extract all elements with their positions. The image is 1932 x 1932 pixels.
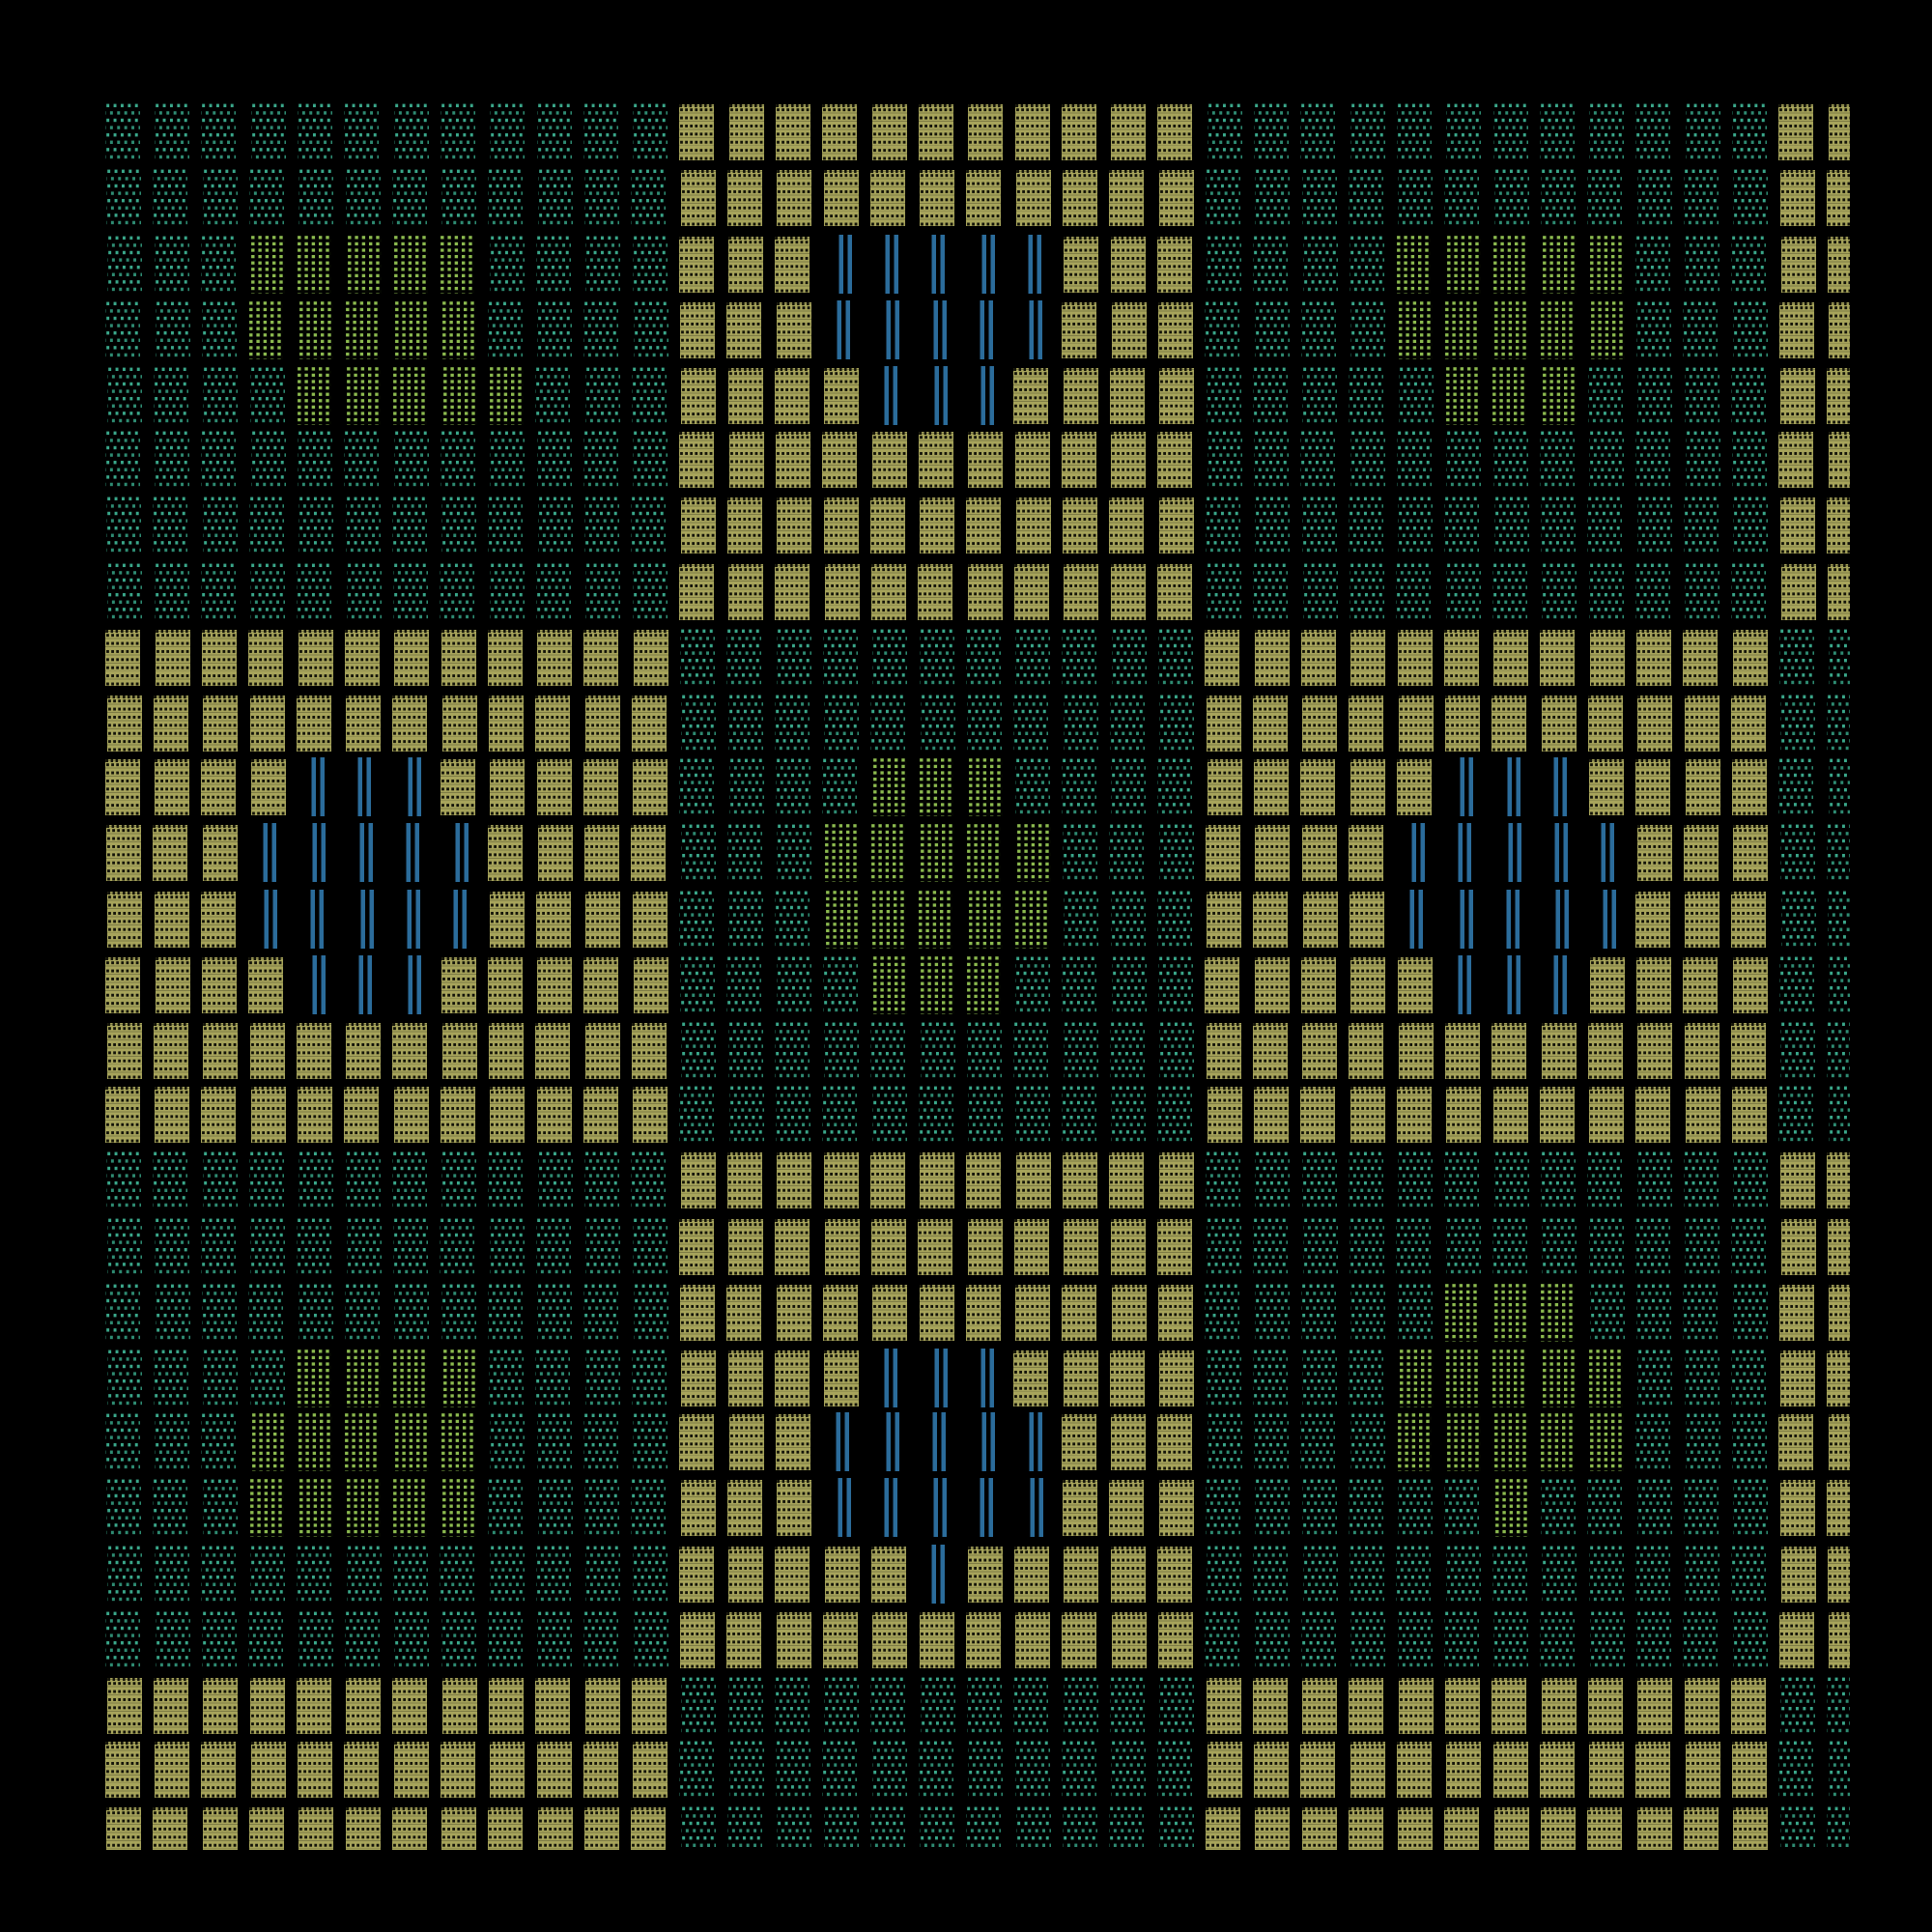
tile-teal-dots	[1207, 1545, 1241, 1604]
tile-khaki-weave	[825, 1547, 860, 1603]
tile-green-dots	[248, 300, 283, 359]
tile-teal-dots	[1350, 235, 1384, 294]
tile-teal-dots	[1062, 1085, 1096, 1144]
tile-green-dots	[1590, 300, 1625, 359]
tile-khaki-weave	[1540, 1742, 1575, 1798]
tile-teal-dots	[824, 1021, 859, 1080]
tile-teal-dots	[583, 1412, 618, 1471]
tile-teal-dots	[823, 955, 858, 1014]
tile-khaki-weave	[203, 1807, 238, 1850]
tile-khaki-weave	[153, 825, 187, 881]
tile-khaki-weave	[1062, 1285, 1096, 1341]
tile-khaki-weave	[1635, 759, 1670, 815]
tile-teal-dots	[1446, 1217, 1481, 1276]
tile-teal-dots	[1253, 366, 1288, 425]
tile-blue-bars	[920, 1478, 954, 1537]
tile-khaki-weave	[919, 432, 953, 488]
tile-teal-dots	[1206, 496, 1240, 554]
tile-teal-dots	[1206, 1478, 1240, 1537]
tile-teal-dots	[1398, 1283, 1433, 1342]
tile-green-dots	[489, 366, 524, 425]
tile-teal-dots	[1062, 757, 1096, 816]
tile-khaki-weave	[823, 1612, 858, 1668]
tile-teal-dots	[1827, 1676, 1850, 1735]
tile-khaki-weave	[489, 696, 524, 752]
tile-khaki-weave	[681, 1152, 716, 1208]
tile-khaki-weave	[1062, 1414, 1096, 1470]
tile-teal-dots	[777, 628, 811, 687]
tile-teal-dots	[1828, 890, 1850, 949]
tile-green-dots	[968, 757, 1003, 816]
tile-blue-bars	[1446, 757, 1481, 816]
tile-green-dots	[440, 1412, 475, 1471]
tile-teal-dots	[537, 1610, 572, 1669]
tile-teal-dots	[726, 628, 761, 687]
tile-teal-dots	[156, 1610, 190, 1669]
tile-khaki-weave	[1829, 1414, 1850, 1470]
tile-khaki-weave	[681, 1350, 716, 1406]
tile-teal-dots	[1587, 168, 1622, 227]
tile-blue-bars	[1493, 955, 1528, 1014]
tile-teal-dots	[727, 823, 762, 882]
tile-blue-bars	[921, 366, 955, 425]
tile-teal-dots	[728, 890, 763, 949]
tile-teal-dots	[490, 1217, 525, 1276]
tile-teal-dots	[1635, 562, 1670, 621]
tile-teal-dots	[1159, 1021, 1194, 1080]
tile-teal-dots	[536, 1217, 571, 1276]
tile-khaki-weave	[1733, 630, 1768, 686]
tile-blue-bars	[871, 235, 906, 294]
tile-khaki-weave	[728, 564, 763, 620]
tile-teal-dots	[1444, 1610, 1479, 1669]
tile-khaki-weave	[1637, 1023, 1672, 1079]
tile-teal-dots	[1780, 694, 1815, 753]
tile-teal-dots	[1207, 1217, 1241, 1276]
tile-teal-dots	[1255, 300, 1290, 359]
tile-blue-bars	[394, 955, 429, 1014]
tile-khaki-weave	[1827, 1480, 1850, 1536]
tile-khaki-weave	[155, 1087, 189, 1143]
tile-khaki-weave	[1207, 1023, 1241, 1079]
tile-khaki-weave	[1397, 1742, 1432, 1798]
tile-khaki-weave	[1494, 1807, 1529, 1850]
tile-khaki-weave	[107, 1678, 142, 1734]
tile-teal-dots	[1301, 1283, 1336, 1342]
tile-khaki-weave	[679, 432, 714, 488]
tile-teal-dots	[535, 366, 570, 425]
tile-khaki-weave	[489, 1678, 524, 1734]
tile-khaki-weave	[1016, 170, 1051, 226]
tile-khaki-weave	[155, 1742, 189, 1798]
tile-khaki-weave	[105, 630, 140, 686]
tile-khaki-weave	[1015, 1612, 1050, 1668]
tile-teal-dots	[1542, 1545, 1577, 1604]
tile-khaki-weave	[824, 1350, 859, 1406]
tile-teal-dots	[1205, 300, 1239, 359]
tile-green-dots	[1493, 300, 1528, 359]
tile-teal-dots	[1302, 366, 1337, 425]
tile-teal-dots	[824, 1805, 859, 1850]
tile-khaki-weave	[1588, 1678, 1623, 1734]
tile-teal-dots	[107, 366, 142, 425]
tile-khaki-weave	[1111, 1547, 1146, 1603]
tile-blue-bars	[298, 955, 333, 1014]
tile-teal-dots	[1015, 1740, 1050, 1799]
tile-khaki-weave	[535, 696, 570, 752]
tile-teal-dots	[1397, 430, 1432, 489]
tile-khaki-weave	[1159, 497, 1194, 554]
tile-blue-bars	[441, 823, 476, 882]
tile-khaki-weave	[1109, 1480, 1144, 1536]
tile-teal-dots	[203, 496, 238, 554]
tile-khaki-weave	[1828, 1219, 1850, 1275]
tile-teal-dots	[250, 1545, 285, 1604]
tile-khaki-weave	[966, 497, 1001, 554]
tile-green-dots	[1492, 366, 1526, 425]
tile-khaki-weave	[442, 1023, 477, 1079]
tile-teal-dots	[344, 102, 379, 161]
tile-khaki-weave	[1349, 696, 1383, 752]
tile-khaki-weave	[538, 825, 573, 881]
tile-teal-dots	[1829, 757, 1850, 816]
tile-khaki-weave	[1492, 696, 1526, 752]
tile-green-dots	[1446, 235, 1481, 294]
tile-khaki-weave	[202, 630, 237, 686]
tile-teal-dots	[1541, 1151, 1576, 1209]
tile-blue-bars	[345, 955, 380, 1014]
tile-khaki-weave	[1206, 825, 1240, 881]
tile-teal-dots	[250, 1217, 285, 1276]
tile-khaki-weave	[297, 696, 331, 752]
tile-khaki-weave	[1588, 1023, 1623, 1079]
tile-khaki-weave	[1829, 432, 1850, 488]
tile-khaki-weave	[250, 1678, 285, 1734]
tile-green-dots	[1589, 1412, 1624, 1471]
tile-teal-dots	[1303, 235, 1338, 294]
tile-khaki-weave	[966, 1152, 1001, 1208]
tile-khaki-weave	[918, 1219, 952, 1275]
tile-teal-dots	[1731, 1217, 1766, 1276]
tile-teal-dots	[203, 1478, 238, 1537]
tile-khaki-weave	[822, 104, 857, 160]
tile-teal-dots	[203, 1151, 238, 1209]
tile-teal-dots	[1637, 1478, 1672, 1537]
tile-khaki-weave	[1255, 957, 1290, 1013]
tile-teal-dots	[1685, 1545, 1719, 1604]
tile-khaki-weave	[1254, 759, 1289, 815]
tile-khaki-weave	[919, 104, 953, 160]
tile-teal-dots	[537, 1412, 572, 1471]
tile-blue-bars	[822, 1412, 857, 1471]
tile-teal-dots	[1731, 366, 1766, 425]
tile-teal-dots	[1589, 562, 1624, 621]
tile-khaki-weave	[1302, 1807, 1337, 1850]
tile-khaki-weave	[777, 1480, 811, 1536]
tile-khaki-weave	[1303, 892, 1338, 948]
tile-teal-dots	[1062, 955, 1096, 1014]
tile-khaki-weave	[1013, 368, 1048, 424]
tile-green-dots	[346, 366, 381, 425]
tile-teal-dots	[824, 1676, 859, 1735]
tile-blue-bars	[1446, 890, 1481, 949]
tile-teal-dots	[1446, 1545, 1481, 1604]
tile-teal-dots	[1398, 1151, 1433, 1209]
tile-teal-dots	[441, 1151, 476, 1209]
tile-khaki-weave	[1159, 368, 1194, 424]
tile-teal-dots	[1207, 562, 1241, 621]
tile-khaki-weave	[1778, 104, 1813, 160]
tile-teal-dots	[585, 366, 620, 425]
tile-khaki-weave	[1540, 630, 1575, 686]
tile-khaki-weave	[1015, 104, 1050, 160]
tile-teal-dots	[1637, 496, 1672, 554]
tile-teal-dots	[393, 1545, 428, 1604]
tile-khaki-weave	[968, 432, 1003, 488]
tile-khaki-weave	[1590, 630, 1625, 686]
tile-blue-bars	[968, 235, 1003, 294]
tile-teal-dots	[107, 235, 142, 294]
tile-teal-dots	[634, 300, 668, 359]
tile-teal-dots	[155, 430, 189, 489]
tile-green-dots	[298, 300, 333, 359]
tile-khaki-weave	[1350, 630, 1385, 686]
tile-khaki-weave	[488, 1807, 523, 1850]
tile-teal-dots	[921, 694, 955, 753]
tile-teal-dots	[1686, 430, 1720, 489]
tile-teal-dots	[1158, 955, 1193, 1014]
tile-green-dots	[1589, 235, 1624, 294]
tile-teal-dots	[1253, 1349, 1288, 1407]
tile-khaki-weave	[1111, 104, 1146, 160]
tile-teal-dots	[1590, 1610, 1625, 1669]
tile-teal-dots	[1781, 890, 1816, 949]
tile-khaki-weave	[775, 1350, 810, 1406]
tile-teal-dots	[1350, 102, 1385, 161]
tile-teal-dots	[870, 694, 905, 753]
tile-teal-dots	[1829, 628, 1850, 687]
tile-green-dots	[920, 955, 954, 1014]
tile-teal-dots	[298, 430, 332, 489]
tile-teal-dots	[1587, 496, 1622, 554]
tile-khaki-weave	[1112, 1612, 1147, 1668]
tile-teal-dots	[631, 1478, 666, 1537]
tile-teal-dots	[107, 1217, 142, 1276]
tile-khaki-weave	[1205, 630, 1239, 686]
tile-teal-dots	[536, 1545, 571, 1604]
tile-teal-dots	[537, 300, 572, 359]
tile-khaki-weave	[824, 1152, 859, 1208]
tile-teal-dots	[1254, 1412, 1289, 1471]
tile-khaki-weave	[1064, 237, 1098, 293]
tile-khaki-weave	[777, 1612, 811, 1668]
tile-teal-dots	[1349, 168, 1383, 227]
tile-khaki-weave	[1302, 1678, 1337, 1734]
tile-khaki-weave	[775, 564, 810, 620]
tile-khaki-weave	[1111, 564, 1146, 620]
tile-teal-dots	[1587, 1478, 1622, 1537]
tile-green-dots	[1492, 235, 1527, 294]
tile-teal-dots	[921, 1021, 955, 1080]
tile-blue-bars	[1589, 890, 1624, 949]
tile-teal-dots	[1109, 1805, 1144, 1850]
tile-teal-dots	[1397, 102, 1432, 161]
tile-teal-dots	[680, 628, 715, 687]
tile-khaki-weave	[1157, 104, 1192, 160]
tile-teal-dots	[154, 366, 188, 425]
tile-khaki-weave	[1492, 1678, 1526, 1734]
tile-khaki-weave	[1064, 564, 1098, 620]
tile-teal-dots	[1349, 366, 1383, 425]
tile-teal-dots	[775, 1676, 810, 1735]
tile-khaki-weave	[872, 432, 907, 488]
tile-teal-dots	[1350, 300, 1385, 359]
tile-teal-dots	[729, 1740, 764, 1799]
tile-teal-dots	[1015, 628, 1050, 687]
tile-khaki-weave	[1350, 759, 1385, 815]
tile-teal-dots	[298, 1283, 333, 1342]
tile-teal-dots	[1636, 300, 1671, 359]
tile-khaki-weave	[872, 1285, 907, 1341]
tile-blue-bars	[968, 1412, 1003, 1471]
tile-khaki-weave	[1110, 368, 1145, 424]
tile-khaki-weave	[729, 104, 764, 160]
tile-teal-dots	[1302, 496, 1337, 554]
tile-teal-dots	[488, 300, 523, 359]
tile-blue-bars	[249, 823, 284, 882]
tile-teal-dots	[583, 1610, 618, 1669]
tile-khaki-weave	[585, 1678, 620, 1734]
tile-khaki-weave	[394, 1742, 429, 1798]
tile-teal-dots	[1157, 757, 1192, 816]
tile-khaki-weave	[346, 1023, 381, 1079]
tile-khaki-weave	[490, 1742, 525, 1798]
tile-khaki-weave	[583, 1087, 618, 1143]
tile-teal-dots	[201, 1412, 236, 1471]
tile-teal-dots	[105, 1283, 140, 1342]
tile-teal-dots	[1255, 1151, 1290, 1209]
tile-teal-dots	[201, 235, 236, 294]
tile-teal-dots	[728, 1676, 763, 1735]
tile-khaki-weave	[1444, 630, 1479, 686]
tile-khaki-weave	[537, 759, 572, 815]
tile-teal-dots	[298, 102, 332, 161]
tile-green-dots	[1493, 1283, 1528, 1342]
tile-khaki-weave	[488, 825, 523, 881]
tile-blue-bars	[1540, 955, 1575, 1014]
tile-blue-bars	[1444, 955, 1479, 1014]
tile-teal-dots	[1064, 694, 1098, 753]
tile-teal-dots	[1300, 102, 1335, 161]
tile-teal-dots	[347, 562, 382, 621]
tile-teal-dots	[1349, 1478, 1383, 1537]
tile-teal-dots	[393, 562, 428, 621]
tile-khaki-weave	[822, 432, 857, 488]
tile-teal-dots	[1302, 1349, 1337, 1407]
tile-khaki-weave	[1542, 1678, 1577, 1734]
tile-khaki-weave	[1063, 1152, 1097, 1208]
tile-khaki-weave	[583, 630, 618, 686]
tile-green-dots	[394, 300, 429, 359]
tile-blue-bars	[1541, 823, 1576, 882]
tile-teal-dots	[966, 1805, 1001, 1850]
tile-teal-dots	[536, 562, 571, 621]
tile-teal-dots	[1542, 1217, 1577, 1276]
tile-teal-dots	[583, 300, 618, 359]
tile-khaki-weave	[584, 825, 619, 881]
tile-teal-dots	[537, 430, 572, 489]
tile-teal-dots	[726, 955, 761, 1014]
tile-teal-dots	[488, 1478, 523, 1537]
tile-khaki-weave	[490, 759, 525, 815]
tile-teal-dots	[105, 102, 140, 161]
tile-teal-dots	[1493, 430, 1528, 489]
tile-green-dots	[249, 1478, 284, 1537]
tile-teal-dots	[1684, 168, 1719, 227]
tile-khaki-weave	[1205, 957, 1239, 1013]
tile-teal-dots	[441, 168, 476, 227]
tile-teal-dots	[538, 168, 573, 227]
tile-teal-dots	[298, 496, 333, 554]
tile-khaki-weave	[1157, 432, 1192, 488]
tile-khaki-weave	[728, 237, 763, 293]
tile-khaki-weave	[248, 630, 283, 686]
tile-khaki-weave	[1015, 1285, 1050, 1341]
tile-blue-bars	[921, 1349, 955, 1407]
tile-teal-dots	[202, 1610, 237, 1669]
tile-khaki-weave	[442, 696, 477, 752]
tile-teal-dots	[1159, 1805, 1194, 1850]
tile-teal-dots	[106, 496, 141, 554]
tile-teal-dots	[346, 496, 381, 554]
tile-teal-dots	[967, 1676, 1002, 1735]
tile-green-dots	[392, 366, 427, 425]
tile-khaki-weave	[1445, 1023, 1480, 1079]
tile-teal-dots	[490, 102, 525, 161]
tile-khaki-weave	[726, 1612, 761, 1668]
tile-khaki-weave	[1637, 1807, 1672, 1850]
tile-teal-dots	[919, 1740, 953, 1799]
tile-khaki-weave	[679, 104, 714, 160]
tile-khaki-weave	[1063, 1480, 1097, 1536]
tile-teal-dots	[921, 1676, 955, 1735]
tile-teal-dots	[633, 1412, 668, 1471]
tile-blue-bars	[918, 235, 952, 294]
tile-khaki-weave	[1733, 825, 1768, 881]
tile-khaki-weave	[537, 957, 572, 1013]
tile-khaki-weave	[632, 1678, 667, 1734]
tile-teal-dots	[298, 1151, 333, 1209]
tile-khaki-weave	[633, 1087, 668, 1143]
tile-teal-dots	[631, 496, 666, 554]
tile-teal-dots	[248, 1283, 283, 1342]
tile-khaki-weave	[1827, 1350, 1850, 1406]
tile-teal-dots	[1733, 1151, 1768, 1209]
tile-blue-bars	[967, 1349, 1002, 1407]
tile-teal-dots	[1013, 694, 1048, 753]
tile-khaki-weave	[249, 1807, 284, 1850]
tile-blue-bars	[1398, 823, 1433, 882]
tile-khaki-weave	[154, 1023, 188, 1079]
tile-teal-dots	[1396, 1217, 1431, 1276]
tile-teal-dots	[1398, 168, 1433, 227]
tile-khaki-weave	[1157, 237, 1192, 293]
tile-teal-dots	[1253, 1545, 1288, 1604]
tile-teal-dots	[1300, 430, 1335, 489]
tile-khaki-weave	[535, 1678, 570, 1734]
tile-khaki-weave	[1446, 1087, 1481, 1143]
tile-blue-bars	[297, 890, 331, 949]
